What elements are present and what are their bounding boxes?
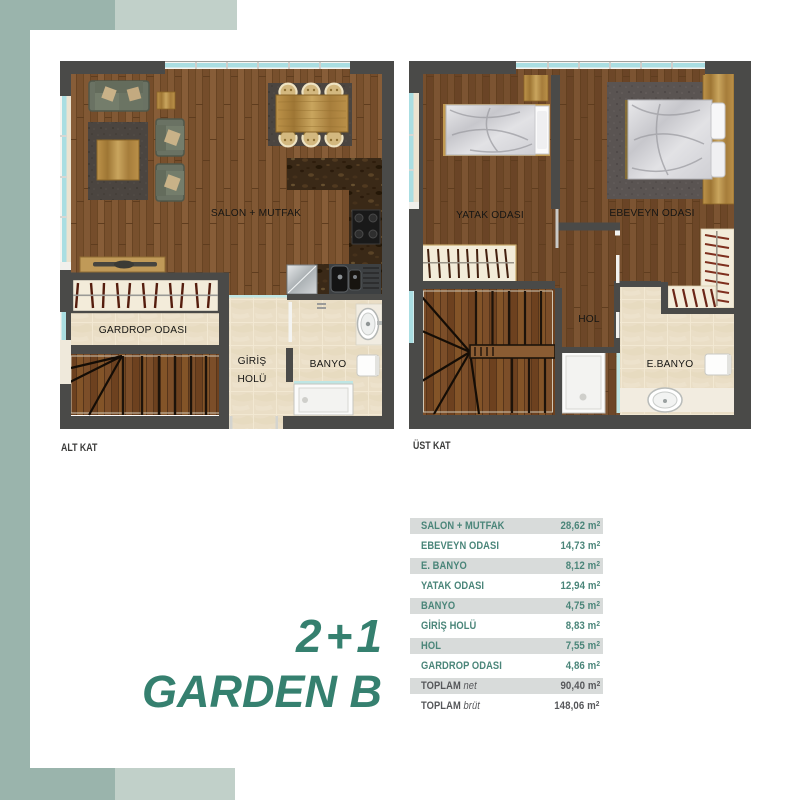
svg-text:E.BANYO: E.BANYO <box>647 359 694 370</box>
svg-text:BANYO: BANYO <box>310 359 347 370</box>
svg-text:EBEVEYN ODASI: EBEVEYN ODASI <box>609 208 694 219</box>
svg-text:HOL: HOL <box>578 314 600 325</box>
svg-text:GİRİŞ: GİRİŞ <box>238 354 267 367</box>
svg-text:SALON + MUTFAK: SALON + MUTFAK <box>211 208 301 219</box>
svg-text:YATAK ODASI: YATAK ODASI <box>456 210 524 221</box>
svg-text:GARDROP ODASI: GARDROP ODASI <box>99 325 187 336</box>
svg-text:HOLÜ: HOLÜ <box>237 373 266 385</box>
